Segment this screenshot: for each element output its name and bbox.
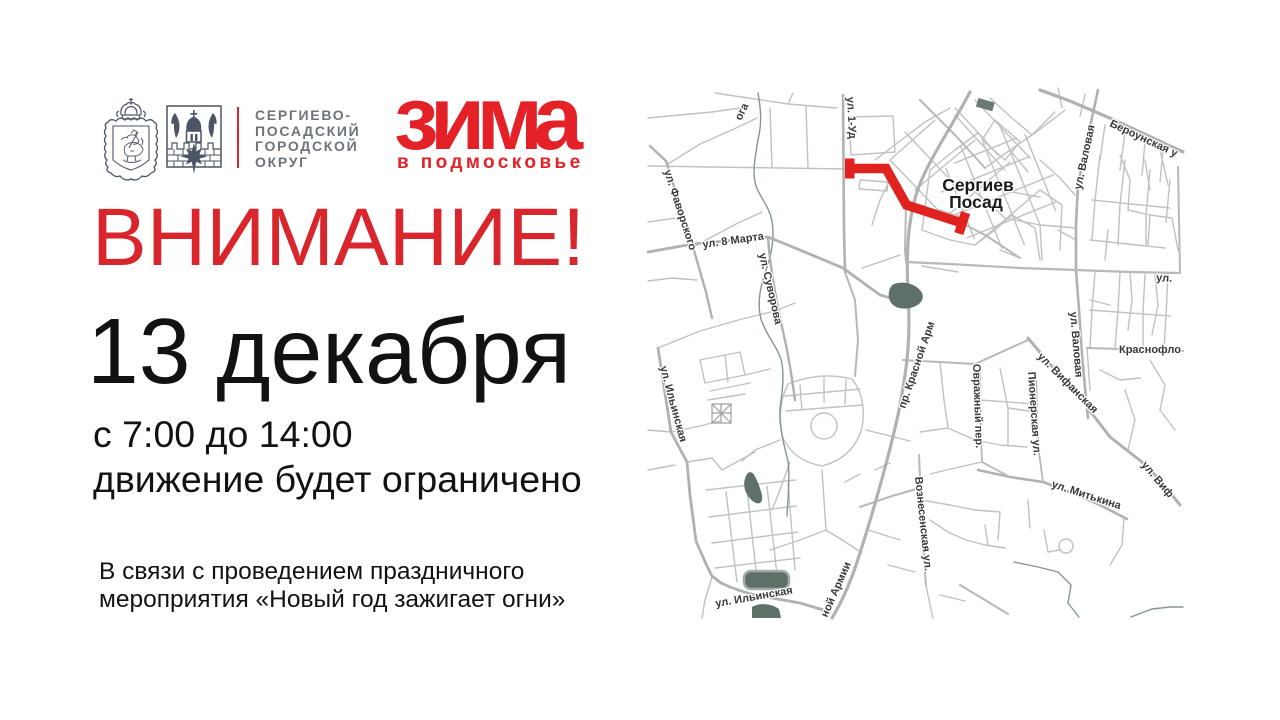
svg-text:Посад: Посад <box>949 192 1003 212</box>
svg-text:ул.: ул. <box>1156 272 1173 285</box>
svg-text:Вознесенская ул.: Вознесенская ул. <box>912 476 934 571</box>
svg-text:ул. Фаворского: ул. Фаворского <box>661 168 698 252</box>
svg-text:Краснофло: Краснофло <box>1119 344 1181 356</box>
svg-text:ул. 1-Уд: ул. 1-Уд <box>844 97 858 140</box>
svg-text:Пионерская ул.: Пионерская ул. <box>1025 371 1043 456</box>
svg-text:ул. 8 Марта: ул. 8 Марта <box>702 230 766 251</box>
svg-text:ул. Виф: ул. Виф <box>1139 459 1176 500</box>
svg-text:ул. Валовая: ул. Валовая <box>1067 311 1085 378</box>
svg-text:Овражный пер.: Овражный пер. <box>970 364 985 449</box>
svg-text:пр. Красной Арм: пр. Красной Арм <box>896 320 937 410</box>
svg-text:ул. Вифанская: ул. Вифанская <box>1035 351 1100 416</box>
svg-text:ул. Митькина: ул. Митькина <box>1050 478 1123 512</box>
svg-text:ул. Валовая: ул. Валовая <box>1072 124 1097 191</box>
svg-text:ога: ога <box>733 101 752 123</box>
